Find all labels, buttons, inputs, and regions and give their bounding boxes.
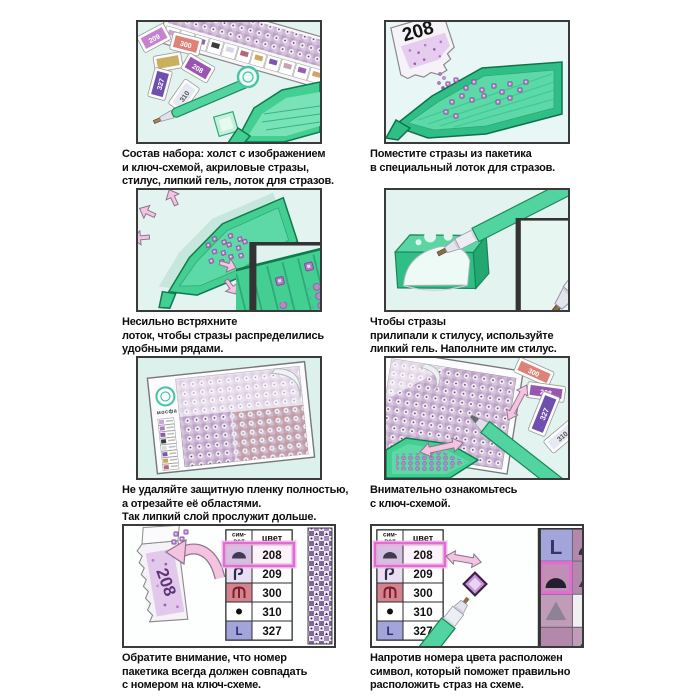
shake-arrow-icon [163,190,183,208]
packet-number-match-illustration: 208 сим- вол цвет [124,526,334,646]
caption-line: Поместите стразы из пакетика [370,148,610,162]
packet-208-open: 208 [390,22,459,83]
caption-line: в специальный лоток для стразов. [370,162,610,176]
kit-contents-illustration: 209 300 208 [138,22,320,142]
step-5-caption: Не удаляйте защитную пленку полностью, а… [122,484,362,525]
symbol-dot-icon [387,609,393,615]
svg-text:209: 209 [413,569,432,581]
step-6-panel: 300 208 327 310 [384,356,570,480]
caption-line: Внимательно ознакомьтесь [370,484,610,498]
symbol-placement-illustration: сим- вол цвет 208 209 300 [372,526,582,646]
svg-text:208: 208 [413,550,433,562]
step-7: 208 сим- вол цвет [122,524,336,692]
key-table: сим- вол цвет 208 209 [224,530,294,640]
caption-line: лоток, чтобы стразы распределились [122,330,362,344]
step-5-panel: мосфа [136,356,322,480]
caption-line: а отрезайте её областями. [122,498,362,512]
step-4-caption: Чтобы стразы прилипали к стилусу, исполь… [370,316,610,357]
step-2-caption: Поместите стразы из пакетика в специальн… [370,148,610,175]
symbol-letter-L-icon: L [235,626,242,638]
caption-line: Обратите внимание, что номер [122,652,362,666]
stone-tray [226,82,320,142]
caption-line: с ключ-схемой. [370,498,610,512]
caption-line: с номером на ключ-схеме. [122,679,362,693]
canvas-sheet: мосфа [147,362,314,474]
gel-stylus-illustration [386,190,568,310]
step-1-panel: 209 300 208 [136,20,322,144]
packet-327: 327 [147,67,172,101]
step-3: Несильно встряхните лоток, чтобы стразы … [122,188,336,356]
svg-text:300: 300 [413,588,432,600]
step-2-panel: 208 [384,20,570,144]
caption-line: прилипали к стилусу, используйте [370,330,610,344]
caption-line: Не удаляйте защитную пленку полностью, [122,484,362,498]
svg-text:300: 300 [262,588,281,600]
stone-diamond [464,573,487,596]
caption-line: стилус, липкий гель, лоток для стразов. [122,175,362,189]
scheme-closeup-grid: L L [539,528,582,646]
step-7-panel: 208 сим- вол цвет [122,524,336,648]
symbol-letter-L-icon: L [386,626,393,638]
grid-symbol-L: L [550,536,563,559]
caption-line: липкий гель. Наполните им стилус. [370,343,610,357]
caption-line: и ключ-схемой, акриловые стразы, [122,162,362,176]
instruction-sheet: 209 300 208 [122,20,584,692]
step-7-caption: Обратите внимание, что номер пакетика вс… [122,652,362,693]
shake-tray-illustration [138,190,320,310]
caption-line: Так липкий слой прослужит дольше. [122,511,362,525]
key-table: сим- вол цвет 208 209 300 [375,530,445,640]
caption-line: Состав набора: холст с изображением [122,148,362,162]
svg-text:310: 310 [413,607,432,619]
pour-stones-illustration: 208 [386,22,568,142]
step-6-caption: Внимательно ознакомьтесь с ключ-схемой. [370,484,610,511]
step-5: мосфа [122,356,336,524]
step-3-panel [136,188,322,312]
svg-text:208: 208 [262,550,282,562]
symbol-dot-icon [236,609,242,615]
caption-line: символ, который поможет правильно [370,666,610,680]
step-8: сим- вол цвет 208 209 300 [370,524,584,692]
shake-arrow-icon [138,202,158,222]
svg-text:327: 327 [262,626,281,638]
step-8-caption: Напротив номера цвета расположен символ,… [370,652,610,693]
caption-line: Напротив номера цвета расположен [370,652,610,666]
svg-text:310: 310 [262,607,281,619]
caption-line: Чтобы стразы [370,316,610,330]
step-6: 300 208 327 310 [370,356,584,524]
study-key-illustration: 300 208 327 310 [386,358,568,478]
step-4-panel [384,188,570,312]
step-8-panel: сим- вол цвет 208 209 300 [370,524,584,648]
double-arrow-icon [445,549,483,569]
step-4: Чтобы стразы прилипали к стилусу, исполь… [370,188,584,356]
brand-logo-icon [238,67,258,87]
caption-line: расположить страз на схеме. [370,679,610,693]
step-1-caption: Состав набора: холст с изображением и кл… [122,148,362,189]
shake-arrow-icon [138,230,150,245]
svg-text:209: 209 [262,569,281,581]
protective-film-illustration: мосфа [138,358,320,478]
caption-line: удобными рядами. [122,343,362,357]
pattern-strip [308,528,332,644]
step-2: 208 [370,20,584,188]
caption-line: пакетика всегда должен совпадать [122,666,362,680]
step-3-caption: Несильно встряхните лоток, чтобы стразы … [122,316,362,357]
caption-line: Несильно встряхните [122,316,362,330]
step-1: 209 300 208 [122,20,336,188]
